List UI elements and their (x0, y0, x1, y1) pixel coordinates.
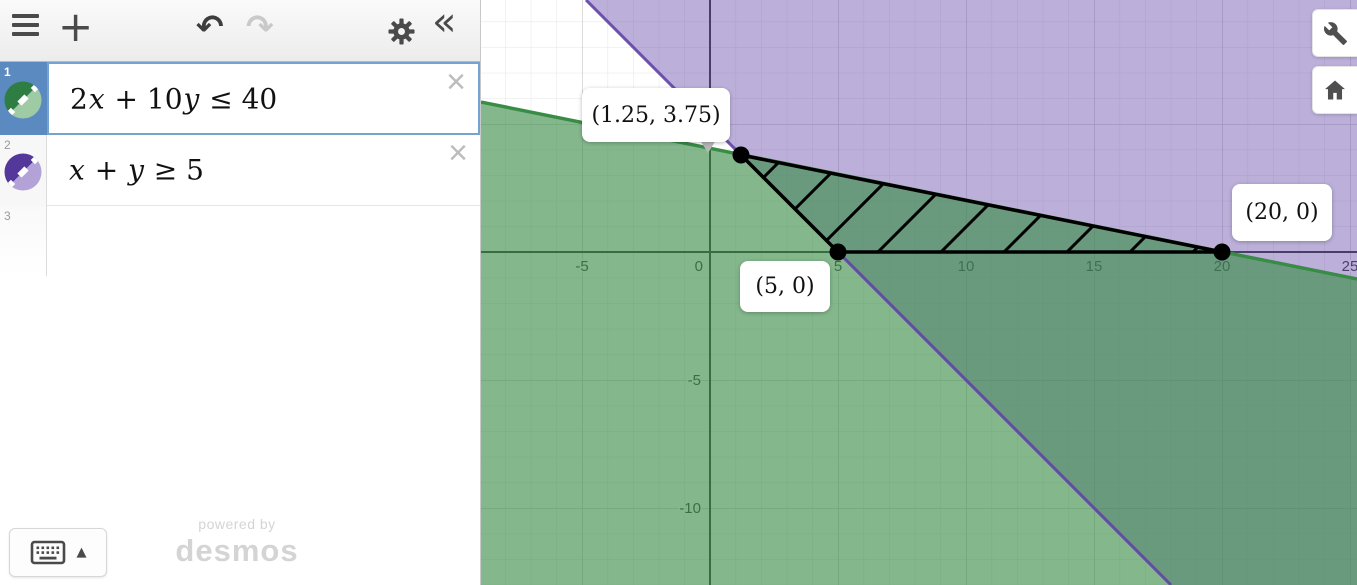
gear-icon (388, 18, 415, 45)
desmos-app: + ↶ ↷ (0, 0, 1357, 585)
inequality-style-icon-green[interactable] (4, 81, 42, 119)
expression-index: 1 (4, 65, 11, 79)
point-label: (20, 0) (1232, 184, 1332, 241)
expression-input-3[interactable] (47, 206, 480, 276)
expression-input-1[interactable]: 2x + 10y ≤ 40 × (47, 62, 480, 135)
graph-settings-button[interactable] (1312, 9, 1357, 57)
expression-text: 2x + 10y ≤ 40 (70, 82, 277, 115)
expression-gutter-2[interactable]: 2 (0, 135, 47, 206)
expression-index: 2 (4, 138, 11, 152)
inequality-style-icon-purple[interactable] (4, 153, 42, 191)
home-icon (1322, 77, 1348, 103)
hide-expressions-button[interactable]: « (432, 2, 456, 42)
keyboard-open-arrow-icon: ▲ (77, 545, 87, 560)
settings-button[interactable] (388, 18, 415, 48)
expression-text: x + y ≥ 5 (68, 154, 204, 187)
expression-gutter-1[interactable]: 1 (0, 62, 47, 135)
point-label: (1.25, 3.75) (582, 88, 730, 142)
delete-expression-2-button[interactable]: × (442, 135, 474, 171)
expression-row: 2 x + y ≥ 5 × (0, 135, 480, 206)
watermark-desmos: desmos (137, 533, 337, 569)
vertex-point-5-0[interactable] (830, 244, 847, 261)
expression-sidebar: + ↶ ↷ (0, 0, 481, 585)
watermark-powered-by: powered by (137, 516, 337, 532)
undo-button[interactable]: ↶ (196, 10, 224, 43)
main-menu-button[interactable] (12, 14, 46, 44)
expression-input-2[interactable]: x + y ≥ 5 × (47, 135, 480, 206)
desmos-watermark: powered by desmos (137, 516, 337, 569)
vertex-point-20-0[interactable] (1214, 244, 1231, 261)
wrench-icon (1323, 21, 1348, 46)
vertex-point-1.25-3.75[interactable] (733, 147, 750, 164)
delete-expression-1-button[interactable]: × (440, 64, 472, 100)
default-zoom-home-button[interactable] (1312, 66, 1357, 114)
graph-paper[interactable]: -50510152025 -5-10 (1.25, 3.75) (5, 0) (… (481, 0, 1357, 585)
expression-gutter-3[interactable]: 3 (0, 206, 47, 276)
add-expression-button[interactable]: + (58, 6, 93, 48)
redo-button: ↷ (246, 10, 274, 43)
expression-index: 3 (4, 209, 11, 223)
expression-row-empty: 3 (0, 206, 480, 276)
show-keyboard-button[interactable]: ▲ (9, 528, 107, 577)
point-label: (5, 0) (740, 261, 830, 312)
expressions-toolbar: + ↶ ↷ (0, 0, 480, 62)
keyboard-icon (30, 539, 66, 566)
expression-row: 1 2x + 10y ≤ 40 × (0, 62, 480, 135)
menu-icon (12, 14, 39, 18)
